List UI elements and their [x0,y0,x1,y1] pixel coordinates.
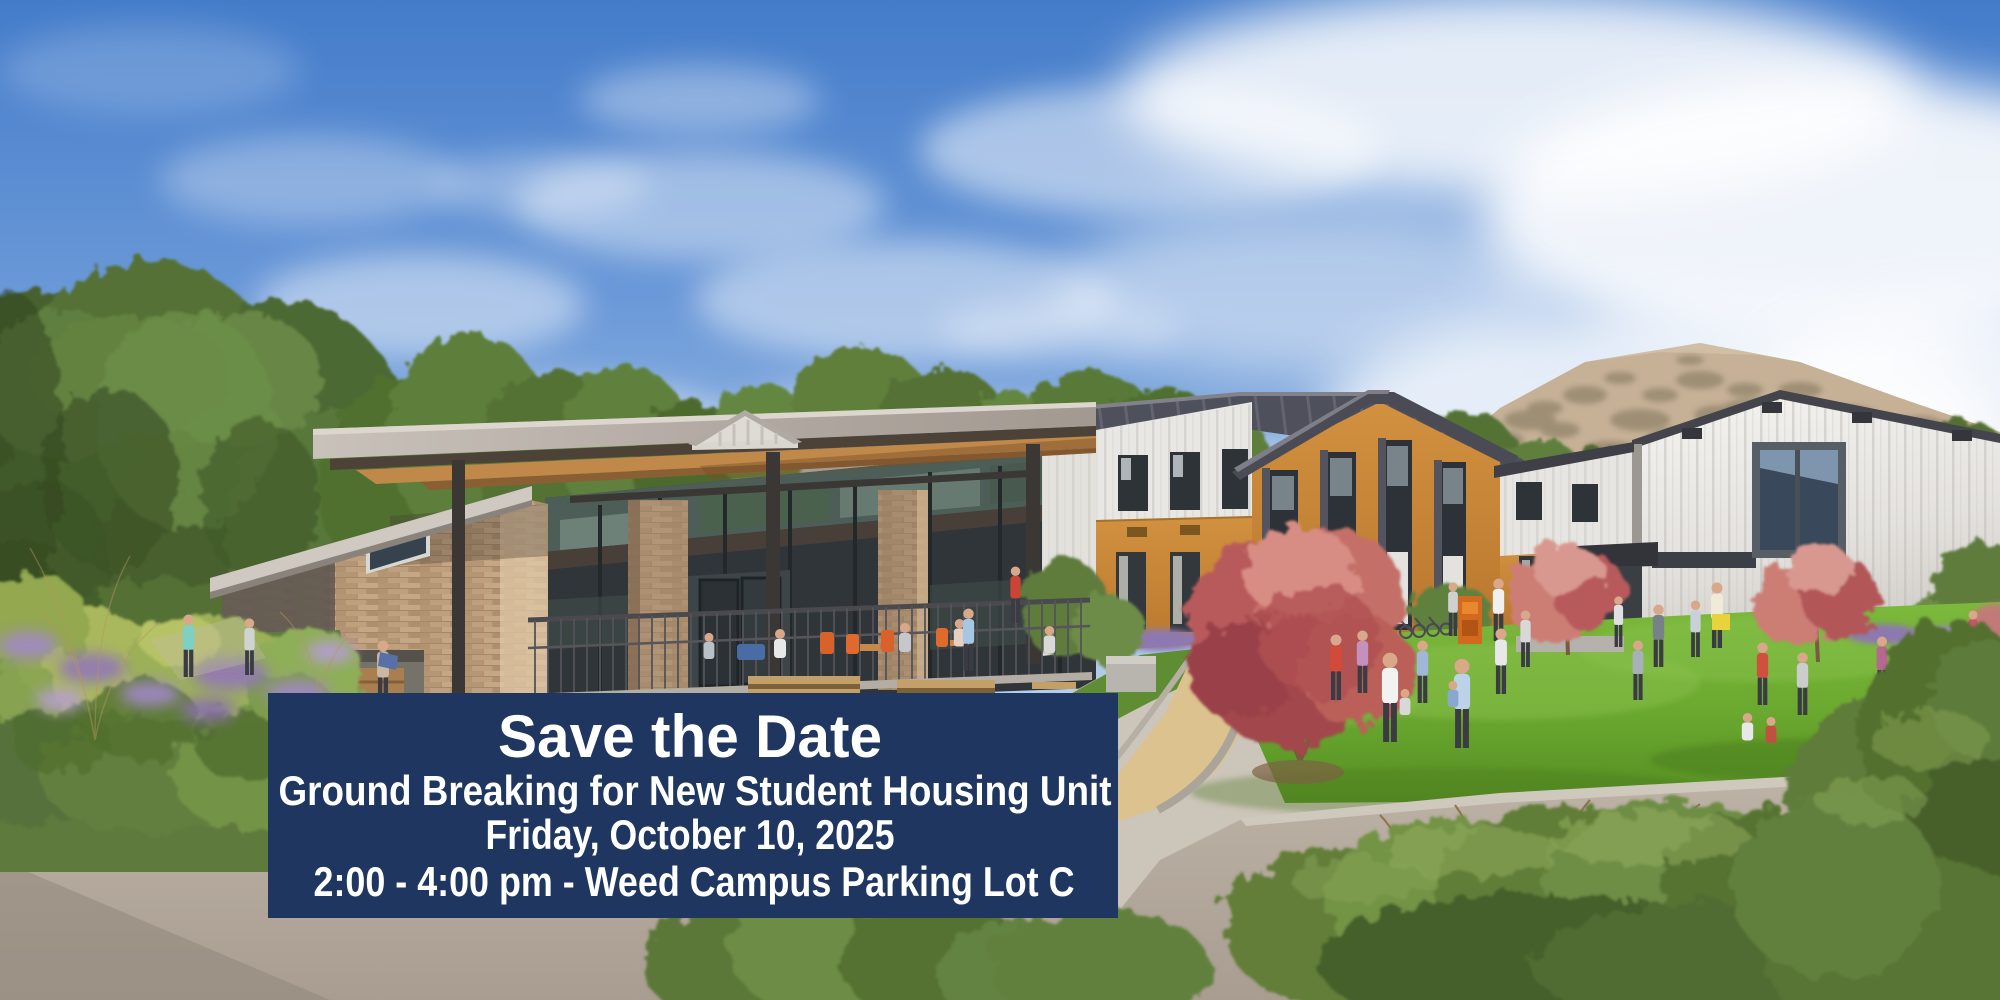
svg-text:2:00 - 4:00 pm - Weed Campus P: 2:00 - 4:00 pm - Weed Campus Parking Lot… [314,858,1075,905]
svg-text:Ground Breaking for New Studen: Ground Breaking for New Student Housing … [279,767,1112,814]
svg-text:Friday, October 10, 2025: Friday, October 10, 2025 [486,811,895,858]
svg-text:Save the Date: Save the Date [498,703,882,770]
